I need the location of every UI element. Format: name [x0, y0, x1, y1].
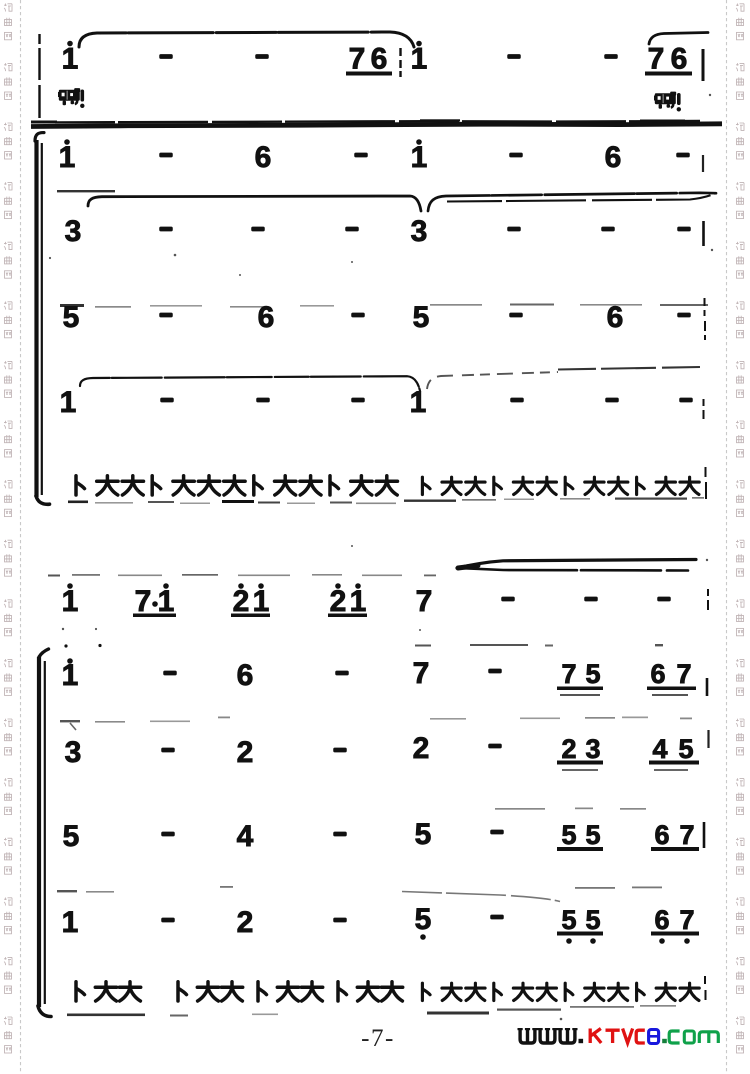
svg-text:6: 6 [654, 820, 669, 850]
svg-text:1: 1 [253, 585, 270, 618]
svg-text:-7-: -7- [361, 1025, 395, 1052]
svg-text:4: 4 [652, 734, 667, 764]
svg-text:5: 5 [413, 301, 430, 334]
svg-text:7: 7 [679, 820, 694, 850]
svg-text:2: 2 [237, 736, 254, 769]
svg-text:3: 3 [585, 734, 600, 764]
svg-text:5: 5 [561, 820, 576, 850]
svg-text:1: 1 [62, 43, 79, 76]
svg-text:7: 7 [679, 905, 694, 935]
svg-text:6: 6 [237, 659, 254, 692]
svg-text:6: 6 [607, 301, 624, 334]
svg-text:1: 1 [158, 585, 175, 618]
svg-text:2: 2 [233, 585, 250, 618]
svg-text:5: 5 [585, 820, 600, 850]
svg-text:5: 5 [585, 905, 600, 935]
svg-text:5: 5 [63, 820, 80, 853]
svg-text:3: 3 [411, 215, 428, 248]
svg-text:2: 2 [237, 906, 254, 939]
svg-text:7: 7 [135, 585, 152, 618]
svg-text:5: 5 [561, 905, 576, 935]
svg-text:7: 7 [416, 585, 433, 618]
svg-text:2: 2 [413, 732, 430, 765]
svg-text:1: 1 [62, 585, 79, 618]
svg-text:1: 1 [60, 386, 77, 419]
svg-text:3: 3 [65, 215, 82, 248]
svg-text:1: 1 [411, 43, 428, 76]
svg-text:6: 6 [650, 659, 665, 689]
svg-text:5: 5 [415, 818, 432, 851]
svg-text:1: 1 [62, 659, 79, 692]
svg-text:5: 5 [63, 301, 80, 334]
svg-text:1: 1 [62, 906, 79, 939]
svg-text:2: 2 [561, 734, 576, 764]
svg-text:1: 1 [59, 141, 76, 174]
svg-text:1: 1 [350, 585, 367, 618]
svg-text:5: 5 [678, 734, 693, 764]
svg-text:2: 2 [330, 585, 347, 618]
svg-text:7: 7 [648, 43, 665, 76]
svg-text:7: 7 [561, 659, 576, 689]
svg-text:6: 6 [258, 301, 275, 334]
svg-text:5: 5 [415, 903, 432, 936]
svg-text:6: 6 [671, 43, 688, 76]
svg-text:7: 7 [413, 657, 430, 690]
svg-text:1: 1 [411, 141, 428, 174]
svg-text:7: 7 [676, 659, 691, 689]
svg-text:6: 6 [654, 905, 669, 935]
svg-text:7: 7 [349, 43, 366, 76]
svg-text:1: 1 [410, 386, 427, 419]
svg-text:6: 6 [605, 141, 622, 174]
svg-text:6: 6 [255, 141, 272, 174]
svg-text:5: 5 [585, 659, 600, 689]
svg-text:6: 6 [371, 43, 388, 76]
svg-text:4: 4 [237, 820, 254, 853]
svg-text:3: 3 [65, 736, 82, 769]
